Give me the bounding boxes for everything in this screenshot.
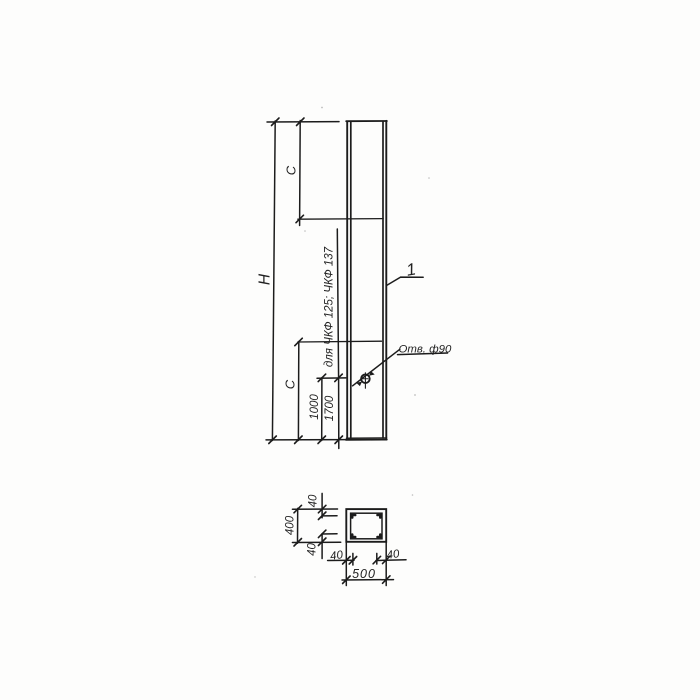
svg-text:С: С bbox=[283, 379, 298, 389]
svg-text:40: 40 bbox=[307, 543, 319, 556]
svg-text:400: 400 bbox=[285, 515, 297, 535]
svg-text:40: 40 bbox=[386, 548, 401, 562]
svg-text:Н: Н bbox=[257, 273, 274, 285]
svg-text:С: С bbox=[284, 165, 299, 175]
svg-text:1700: 1700 bbox=[324, 395, 336, 421]
svg-text:1: 1 bbox=[405, 259, 418, 279]
svg-text:1000: 1000 bbox=[309, 394, 321, 420]
svg-text:500: 500 bbox=[352, 567, 376, 581]
svg-text:40: 40 bbox=[329, 549, 344, 563]
svg-text:для ЧКФ 125; ЧКФ 137: для ЧКФ 125; ЧКФ 137 bbox=[324, 246, 336, 367]
svg-text:40: 40 bbox=[308, 494, 320, 507]
svg-text:Отв. ф90: Отв. ф90 bbox=[399, 344, 452, 356]
